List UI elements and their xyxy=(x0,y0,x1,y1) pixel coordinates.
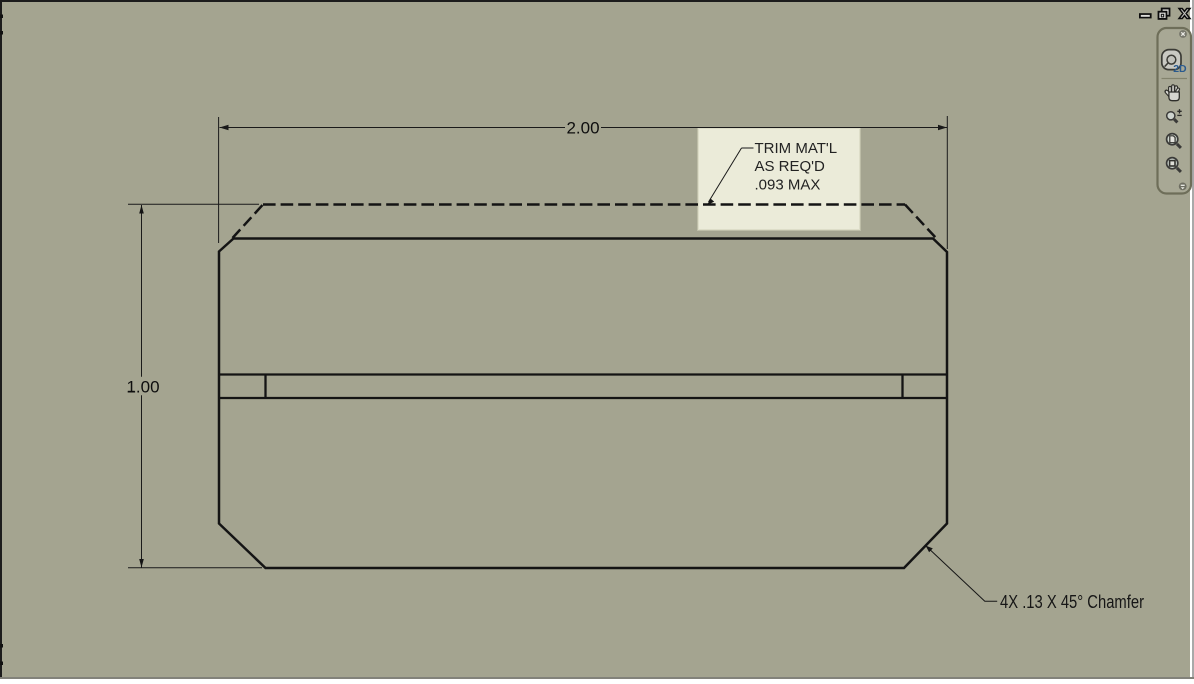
svg-text:2.00: 2.00 xyxy=(566,119,599,138)
svg-text:1.00: 1.00 xyxy=(126,378,159,397)
svg-text:TRIM MAT'L: TRIM MAT'L xyxy=(755,140,838,157)
svg-text:.093 MAX: .093 MAX xyxy=(755,176,821,193)
svg-text:AS REQ'D: AS REQ'D xyxy=(755,158,826,175)
svg-text:4X .13 X 45° Chamfer: 4X .13 X 45° Chamfer xyxy=(1000,592,1144,612)
svg-text:2D: 2D xyxy=(1173,63,1187,75)
